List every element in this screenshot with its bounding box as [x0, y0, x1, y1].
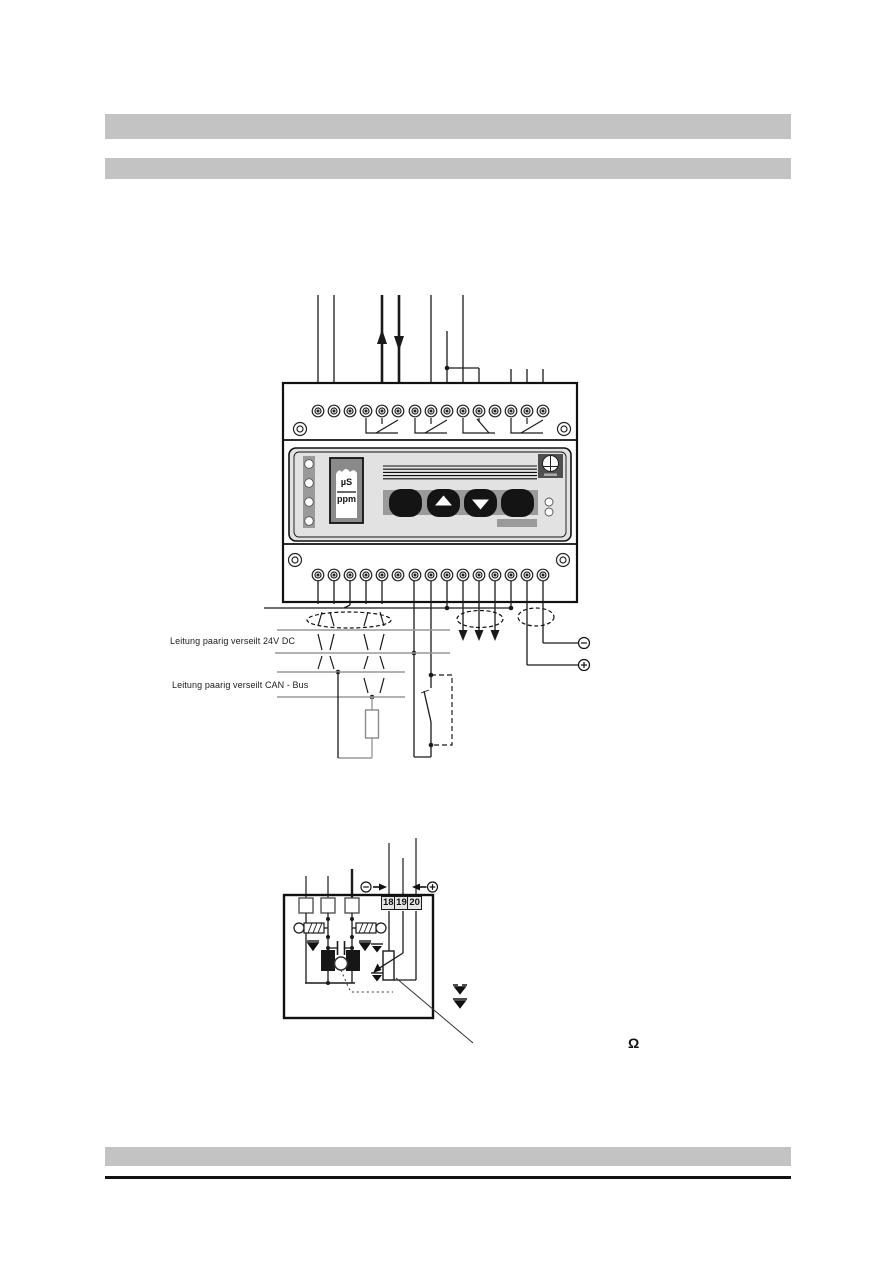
- terminal-number-row: 18 19 20: [381, 896, 422, 910]
- terminal-20: 20: [407, 896, 422, 910]
- arrow-up-icon: [377, 329, 387, 344]
- cable-rails: [275, 630, 450, 758]
- plus-in-icon: [428, 882, 438, 892]
- filter-block-right: [346, 950, 360, 971]
- minus-in-icon: [361, 882, 371, 892]
- plus-terminal-icon: [579, 660, 590, 671]
- filter-block-left: [321, 950, 335, 971]
- termination-resistor: [366, 710, 379, 738]
- panel-label-area: [497, 519, 537, 527]
- detail-entry-squares: [299, 898, 359, 913]
- detail-polarity-annotation: [361, 882, 438, 892]
- wiring-diagram-svg: [0, 0, 893, 1263]
- ground-icons-internal: [307, 941, 371, 950]
- bottom-wiring: [264, 581, 578, 757]
- brand-logo: [538, 454, 563, 478]
- arrow-right-icon: [379, 884, 387, 891]
- button-left: [389, 489, 422, 517]
- ground-icon: [372, 975, 382, 982]
- twisted-pair-marks: [318, 604, 384, 693]
- button-right: [501, 489, 534, 517]
- adjuster-circle: [335, 957, 348, 970]
- cable-label-24v: Leitung paarig verseilt 24V DC: [170, 636, 295, 646]
- junction-dots: [336, 606, 514, 748]
- choke-right: [352, 923, 386, 933]
- cable-label-can-bus: Leitung paarig verseilt CAN - Bus: [172, 680, 308, 690]
- trimmer-arrowhead: [373, 964, 382, 974]
- screw-terminal: [312, 405, 549, 417]
- ground-icons-external: [453, 985, 467, 1008]
- earth-arrow-icons: [459, 630, 500, 641]
- screw-terminal: [312, 569, 549, 581]
- choke-left: [294, 923, 328, 933]
- ground-icon: [372, 946, 382, 953]
- lcd-display: [330, 458, 363, 523]
- junction-dot: [445, 366, 450, 371]
- detail-internal-circuit: [294, 913, 393, 992]
- ohm-symbol: Ω: [628, 1035, 639, 1051]
- display-unit-ppm: ppm: [331, 494, 362, 504]
- minus-terminal-icon: [579, 638, 590, 649]
- manual-page: Leitung paarig verseilt 24V DC Leitung p…: [0, 0, 893, 1263]
- arrow-down-icon: [394, 336, 404, 351]
- display-unit-us: µS: [331, 477, 362, 487]
- trimmer-section: [371, 911, 416, 982]
